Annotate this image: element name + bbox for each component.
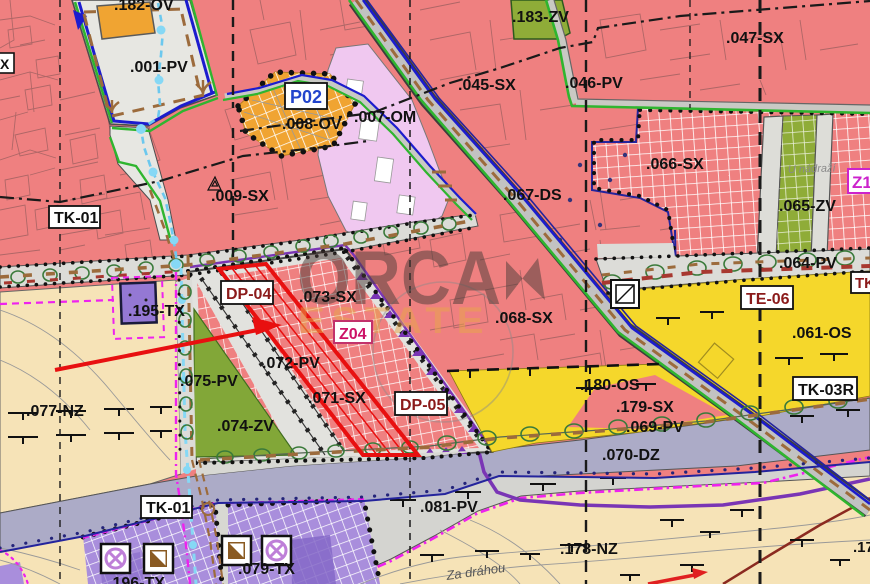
svg-text:.182-OV: .182-OV <box>114 0 174 14</box>
svg-text:.077-NZ: .077-NZ <box>26 403 84 420</box>
svg-text:.064-PV: .064-PV <box>779 255 837 272</box>
svg-text:.001-PV: .001-PV <box>130 59 188 76</box>
svg-text:TK-01: TK-01 <box>146 500 191 517</box>
svg-text:.073-SX: .073-SX <box>299 289 357 306</box>
svg-text:.074-ZV: .074-ZV <box>217 418 274 435</box>
svg-text:.069-PV: .069-PV <box>626 419 684 436</box>
svg-text:P02: P02 <box>290 87 322 107</box>
svg-text:.067-DS: .067-DS <box>503 187 562 204</box>
svg-text:DP-05: DP-05 <box>400 397 445 414</box>
svg-text:.081-PV: .081-PV <box>420 499 478 516</box>
svg-text:.047-SX: .047-SX <box>726 30 784 47</box>
svg-text:.008-OV: .008-OV <box>282 116 342 133</box>
svg-text:TK: TK <box>855 275 870 292</box>
svg-text:.178-NZ: .178-NZ <box>560 541 618 558</box>
svg-text:.195-TX: .195-TX <box>128 303 185 320</box>
svg-text:X: X <box>0 56 10 72</box>
svg-text:.065-ZV: .065-ZV <box>779 198 836 215</box>
svg-text:.17: .17 <box>853 539 870 556</box>
svg-text:.071-SX: .071-SX <box>308 390 366 407</box>
svg-text:DP-04: DP-04 <box>226 286 271 303</box>
svg-text:.079-TX: .079-TX <box>238 561 295 578</box>
svg-text:.183-ZV: .183-ZV <box>512 9 569 26</box>
svg-text:.075-PV: .075-PV <box>180 373 238 390</box>
svg-text:Z1: Z1 <box>852 173 870 192</box>
svg-text:.072-PV: .072-PV <box>262 355 320 372</box>
svg-text:.179-SX: .179-SX <box>616 399 674 416</box>
svg-text:.046-PV: .046-PV <box>565 75 623 92</box>
svg-text:TE-06: TE-06 <box>746 291 790 308</box>
svg-text:.070-DZ: .070-DZ <box>602 447 660 464</box>
svg-text:Z04: Z04 <box>339 326 367 343</box>
svg-text:.045-SX: .045-SX <box>458 77 516 94</box>
svg-text:.009-SX: .009-SX <box>211 188 269 205</box>
svg-text:ESTATE: ESTATE <box>298 300 490 341</box>
svg-text:TK-03R: TK-03R <box>798 382 854 399</box>
svg-text:U nádraží: U nádraží <box>788 162 837 176</box>
svg-text:.180-OS: .180-OS <box>580 377 640 394</box>
svg-text:.066-SX: .066-SX <box>646 156 704 173</box>
svg-text:.007-OM: .007-OM <box>354 109 416 126</box>
svg-text:.068-SX: .068-SX <box>495 310 553 327</box>
svg-text:.196-TX: .196-TX <box>108 575 165 584</box>
svg-text:.061-OS: .061-OS <box>792 325 852 342</box>
svg-text:TK-01: TK-01 <box>54 210 99 227</box>
